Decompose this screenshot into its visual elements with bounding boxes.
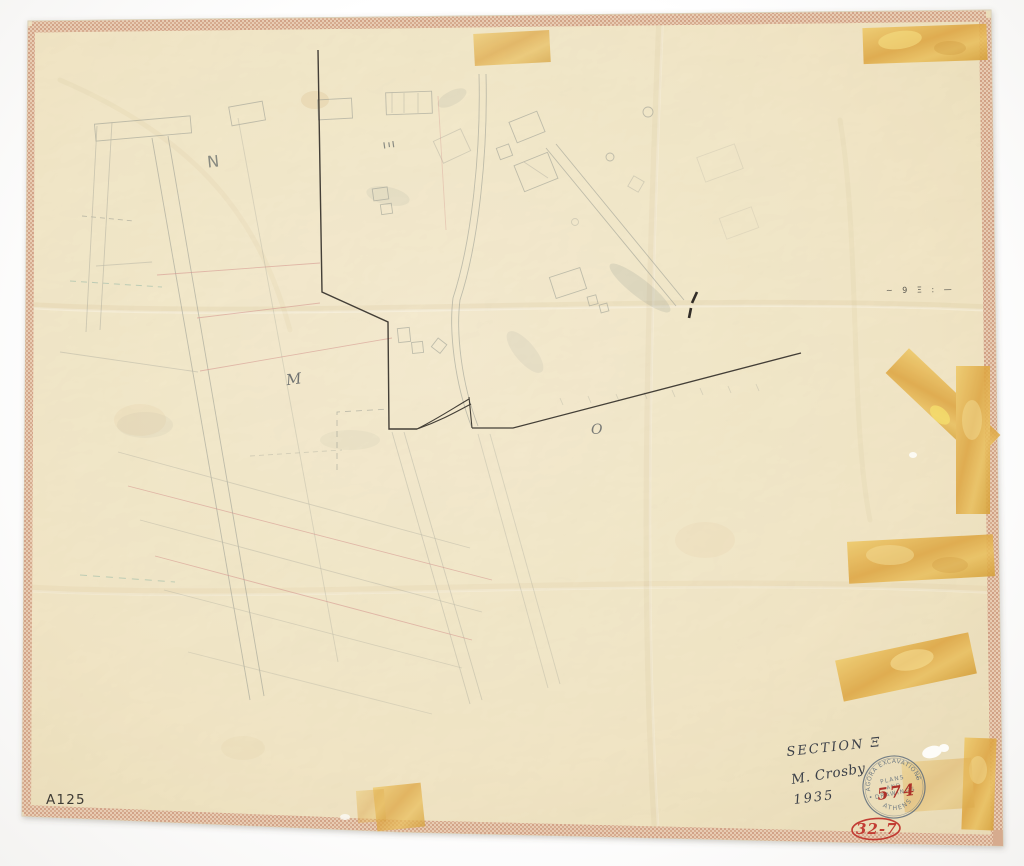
red-code-text: 32-7	[856, 820, 898, 838]
tape-top-center	[473, 30, 551, 66]
archival-plan-scan: ~ 9 Ξ : — N Ξ M O	[0, 0, 1024, 866]
tape-bottom-center-overlap	[356, 789, 386, 823]
label-section-o: O	[591, 422, 603, 438]
tape-right-vertical	[956, 366, 990, 514]
scanned-drawing-viewer: ~ 9 Ξ : — N Ξ M O	[0, 0, 1024, 866]
catalog-number: A125	[46, 792, 86, 808]
binding-tape-corner-flap	[993, 830, 1007, 848]
label-section-m: M	[284, 369, 303, 389]
scale-marks: ~ 9 Ξ : —	[886, 285, 955, 295]
label-section-n: N	[206, 151, 220, 171]
red-code: 32-7	[851, 817, 900, 840]
